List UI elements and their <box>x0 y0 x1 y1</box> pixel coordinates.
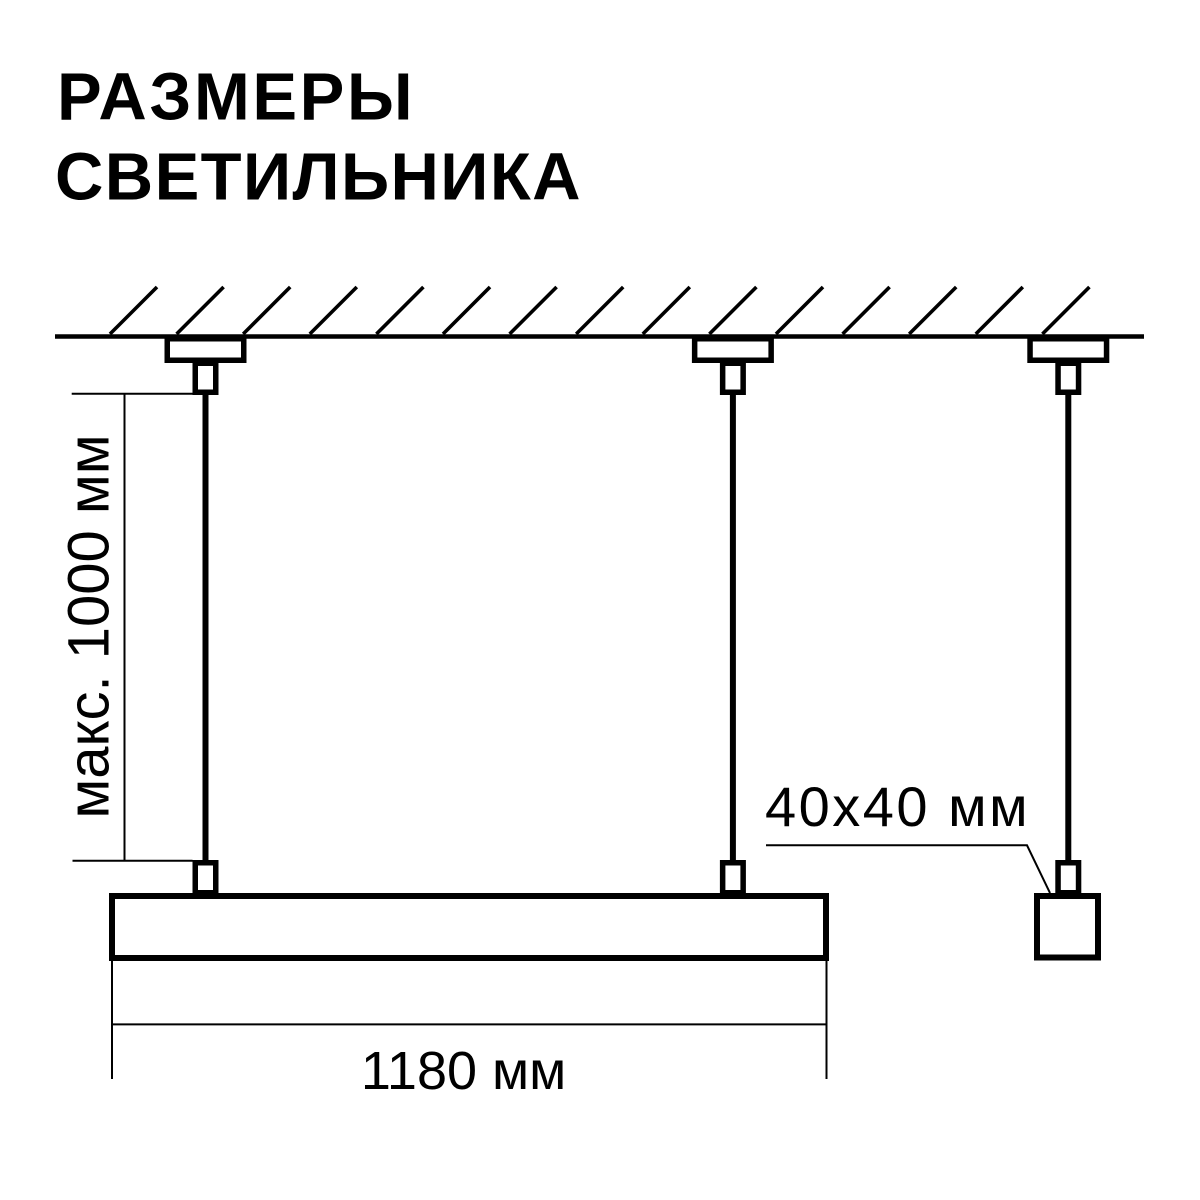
svg-text:СВЕТИЛЬНИКА: СВЕТИЛЬНИКА <box>55 140 582 215</box>
svg-text:макс. 1000 мм: макс. 1000 мм <box>57 434 122 818</box>
svg-text:1180 мм: 1180 мм <box>361 1041 566 1101</box>
svg-text:40x40 мм: 40x40 мм <box>765 775 1030 838</box>
svg-text:РАЗМЕРЫ: РАЗМЕРЫ <box>57 60 415 135</box>
